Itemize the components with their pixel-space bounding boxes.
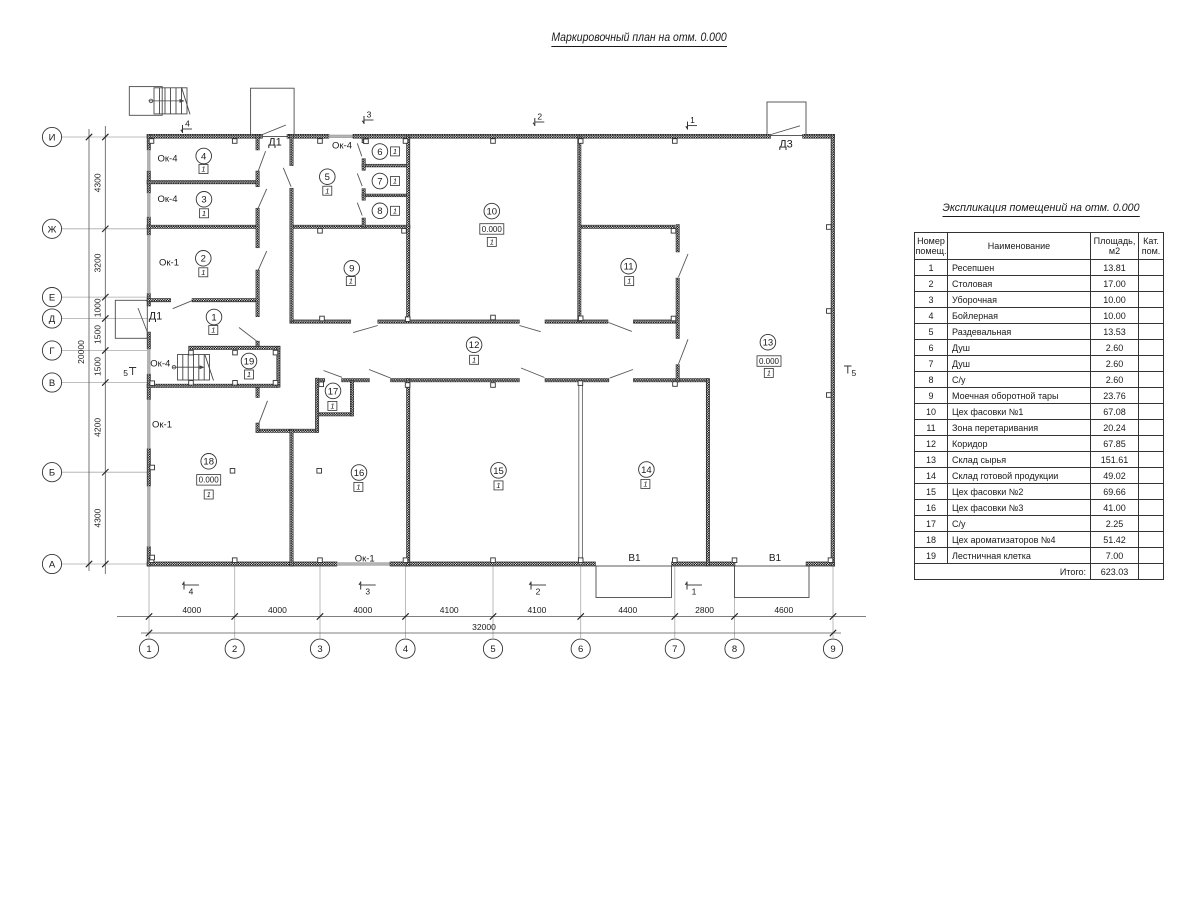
- svg-text:1: 1: [690, 115, 695, 125]
- svg-text:И: И: [49, 133, 56, 144]
- svg-text:1: 1: [211, 326, 215, 335]
- svg-text:20000: 20000: [76, 340, 86, 364]
- svg-text:4100: 4100: [440, 605, 459, 615]
- svg-text:13: 13: [763, 338, 774, 349]
- svg-text:4100: 4100: [527, 605, 546, 615]
- svg-text:5: 5: [123, 368, 128, 378]
- svg-text:0.000: 0.000: [199, 476, 220, 485]
- svg-text:В: В: [49, 378, 55, 389]
- svg-text:4200: 4200: [93, 418, 103, 437]
- svg-text:6: 6: [377, 147, 382, 158]
- svg-text:Ок-4: Ок-4: [158, 153, 178, 164]
- svg-text:1: 1: [393, 177, 397, 186]
- svg-text:1: 1: [247, 370, 251, 379]
- svg-text:4600: 4600: [774, 605, 793, 615]
- svg-text:1: 1: [201, 165, 205, 174]
- svg-text:1: 1: [490, 238, 494, 247]
- svg-text:Ж: Ж: [48, 224, 57, 235]
- svg-text:А: А: [49, 560, 56, 571]
- svg-text:4: 4: [185, 119, 190, 129]
- svg-text:4: 4: [201, 151, 206, 162]
- svg-text:4000: 4000: [268, 605, 287, 615]
- svg-text:4300: 4300: [93, 508, 103, 527]
- svg-text:1: 1: [692, 586, 697, 596]
- svg-text:9: 9: [830, 644, 835, 655]
- svg-text:1: 1: [211, 312, 216, 323]
- svg-text:4000: 4000: [353, 605, 372, 615]
- svg-text:2: 2: [201, 254, 206, 265]
- svg-text:В1: В1: [628, 553, 641, 564]
- svg-text:1500: 1500: [93, 357, 103, 376]
- svg-text:Д: Д: [49, 314, 56, 325]
- svg-text:2: 2: [537, 112, 542, 122]
- svg-text:9: 9: [349, 264, 354, 275]
- svg-text:11: 11: [624, 262, 634, 273]
- svg-text:7: 7: [672, 644, 677, 655]
- svg-text:1: 1: [496, 481, 500, 490]
- svg-text:1: 1: [393, 147, 397, 156]
- svg-text:12: 12: [469, 340, 480, 351]
- svg-text:1: 1: [325, 186, 329, 195]
- svg-text:1: 1: [393, 206, 397, 215]
- svg-text:Ок-1: Ок-1: [152, 419, 172, 430]
- svg-text:4000: 4000: [182, 605, 201, 615]
- svg-text:3: 3: [365, 586, 370, 596]
- svg-text:5: 5: [490, 644, 495, 655]
- svg-text:Ок-4: Ок-4: [332, 140, 352, 151]
- svg-text:3: 3: [317, 644, 322, 655]
- svg-text:Б: Б: [49, 468, 55, 479]
- svg-text:1: 1: [643, 480, 647, 489]
- svg-text:В1: В1: [769, 553, 782, 564]
- svg-text:6: 6: [578, 644, 583, 655]
- svg-text:Ок-1: Ок-1: [159, 258, 179, 269]
- svg-text:1: 1: [201, 268, 205, 277]
- svg-text:15: 15: [493, 466, 504, 477]
- svg-text:7: 7: [377, 176, 382, 187]
- svg-text:8: 8: [377, 206, 382, 217]
- svg-text:10: 10: [487, 207, 498, 218]
- svg-text:5: 5: [852, 368, 857, 378]
- svg-text:1: 1: [330, 402, 334, 411]
- svg-text:5: 5: [325, 172, 330, 183]
- svg-text:1: 1: [207, 490, 211, 499]
- svg-text:Д1: Д1: [149, 311, 163, 323]
- svg-text:3: 3: [201, 195, 206, 206]
- svg-text:Д3: Д3: [779, 139, 793, 151]
- svg-text:32000: 32000: [472, 622, 496, 632]
- svg-text:1: 1: [349, 277, 353, 286]
- svg-text:4: 4: [403, 644, 408, 655]
- svg-text:4300: 4300: [93, 173, 103, 192]
- svg-text:19: 19: [244, 356, 255, 367]
- svg-text:Ок-4: Ок-4: [158, 194, 178, 205]
- svg-text:1: 1: [202, 209, 206, 218]
- svg-text:2: 2: [232, 644, 237, 655]
- svg-text:1: 1: [472, 355, 476, 364]
- svg-text:4: 4: [189, 586, 194, 596]
- svg-text:1: 1: [767, 369, 771, 378]
- svg-text:Ок-4: Ок-4: [150, 358, 170, 369]
- svg-text:Д1: Д1: [268, 137, 282, 149]
- svg-text:3200: 3200: [93, 253, 103, 272]
- svg-text:3: 3: [367, 110, 372, 120]
- svg-text:16: 16: [354, 468, 365, 479]
- svg-text:2800: 2800: [695, 605, 714, 615]
- svg-text:2: 2: [536, 586, 541, 596]
- svg-text:8: 8: [732, 644, 737, 655]
- svg-text:1: 1: [146, 644, 151, 655]
- svg-text:1500: 1500: [93, 325, 103, 344]
- svg-text:0.000: 0.000: [482, 225, 503, 234]
- svg-text:18: 18: [203, 457, 214, 468]
- svg-text:1: 1: [627, 277, 631, 286]
- svg-text:0.000: 0.000: [759, 357, 780, 366]
- svg-text:4400: 4400: [618, 605, 637, 615]
- svg-text:14: 14: [641, 465, 652, 476]
- svg-text:17: 17: [328, 386, 339, 397]
- svg-text:Е: Е: [49, 293, 55, 304]
- svg-text:1000: 1000: [93, 298, 103, 317]
- svg-text:Ок-1: Ок-1: [355, 553, 375, 564]
- svg-text:Г: Г: [49, 346, 54, 357]
- svg-text:1: 1: [356, 483, 360, 492]
